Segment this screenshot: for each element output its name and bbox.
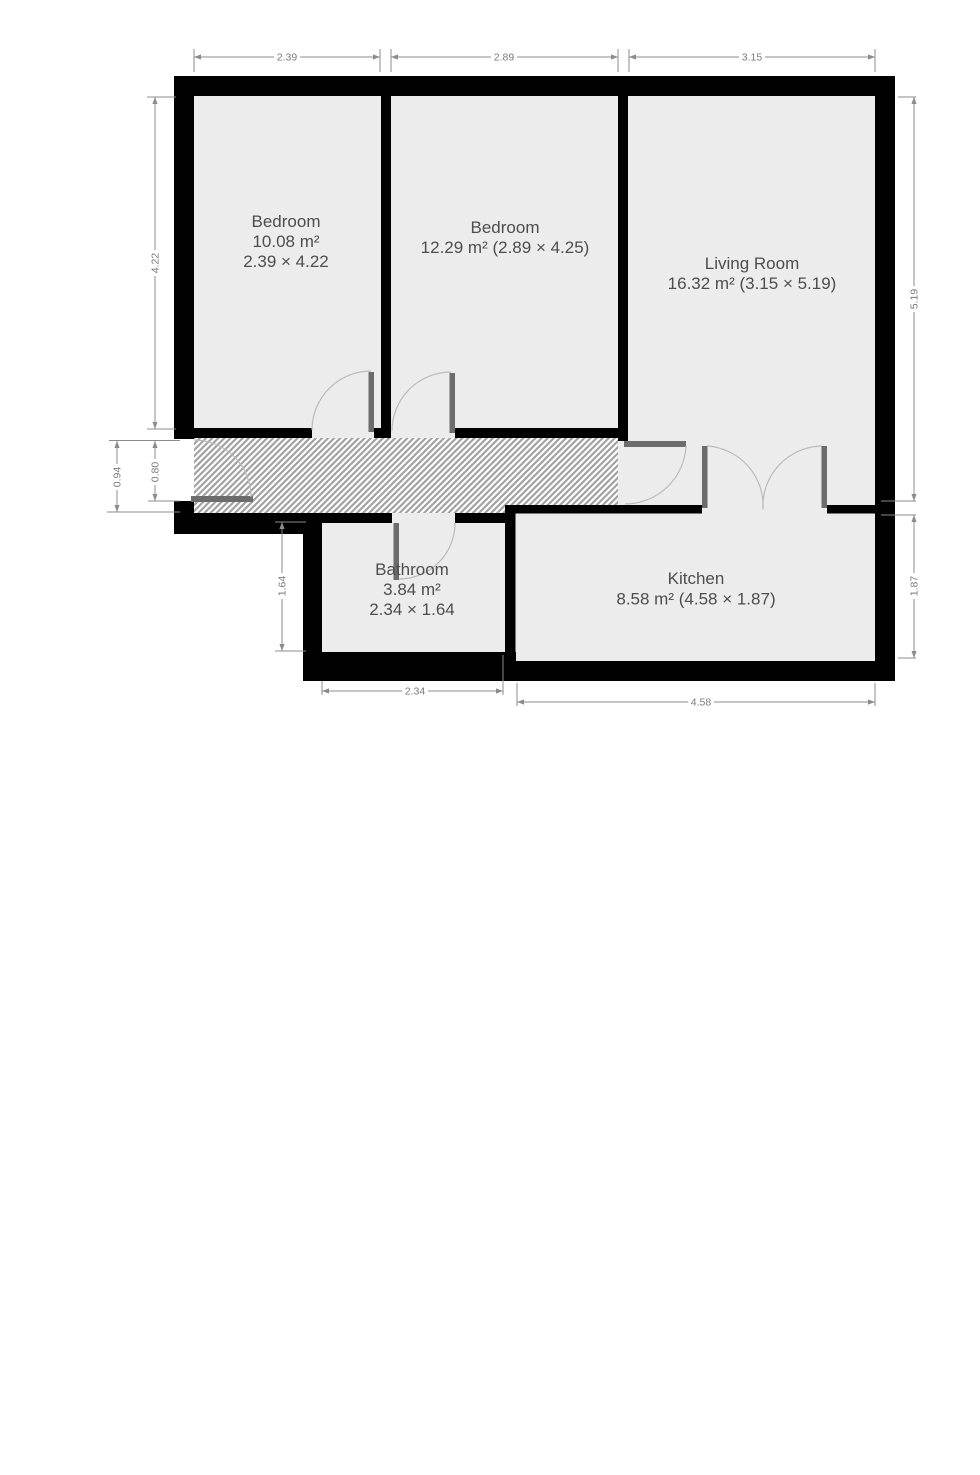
svg-text:4.58: 4.58 (691, 697, 712, 709)
svg-text:16.32 m² (3.15 × 5.19): 16.32 m² (3.15 × 5.19) (668, 274, 837, 293)
svg-text:5.19: 5.19 (909, 289, 921, 310)
svg-text:1.64: 1.64 (277, 576, 289, 597)
svg-text:2.89: 2.89 (494, 52, 515, 64)
svg-text:0.80: 0.80 (150, 462, 162, 483)
svg-text:1.87: 1.87 (909, 576, 921, 597)
svg-text:2.34: 2.34 (405, 686, 426, 698)
svg-text:0.94: 0.94 (112, 467, 124, 488)
svg-text:Bedroom: Bedroom (252, 212, 321, 231)
svg-text:Living Room: Living Room (705, 254, 800, 273)
svg-text:8.58 m² (4.58 × 1.87): 8.58 m² (4.58 × 1.87) (616, 590, 775, 609)
svg-text:4.22: 4.22 (150, 253, 162, 274)
svg-text:Bathroom: Bathroom (375, 560, 449, 579)
svg-text:Bedroom: Bedroom (471, 218, 540, 237)
svg-text:12.29 m² (2.89 × 4.25): 12.29 m² (2.89 × 4.25) (421, 238, 590, 257)
svg-text:2.34 × 1.64: 2.34 × 1.64 (369, 600, 455, 619)
svg-text:2.39: 2.39 (277, 52, 298, 64)
svg-text:2.39 × 4.22: 2.39 × 4.22 (243, 252, 329, 271)
svg-text:3.84 m²: 3.84 m² (383, 580, 441, 599)
svg-text:3.15: 3.15 (742, 52, 763, 64)
svg-text:10.08 m²: 10.08 m² (252, 232, 319, 251)
svg-text:Kitchen: Kitchen (668, 569, 725, 588)
